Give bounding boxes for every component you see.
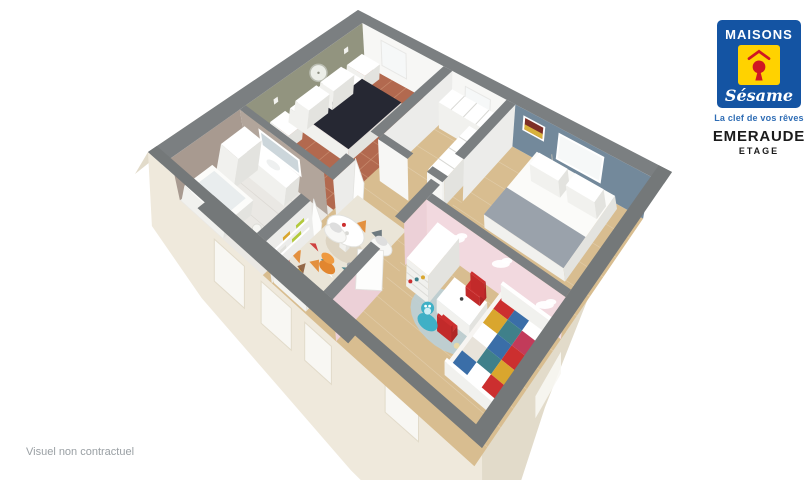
logo-yellow-box bbox=[738, 45, 780, 85]
logo-tagline: La clef de vos rêves bbox=[707, 113, 811, 123]
logo-square: MAISONS Sésame bbox=[717, 20, 801, 108]
logo-brand-top: MAISONS bbox=[725, 27, 793, 42]
floorplan-page: MAISONS Sésame La clef de vos rêves EMER… bbox=[0, 0, 811, 480]
logo-brand-script: Sésame bbox=[725, 86, 793, 105]
brand-logo: MAISONS Sésame La clef de vos rêves bbox=[707, 20, 811, 123]
model-name: EMERAUDE bbox=[707, 128, 811, 145]
keyhole-icon bbox=[738, 45, 780, 85]
model-block: EMERAUDE ETAGE bbox=[707, 128, 811, 156]
floorplan-3d-render bbox=[0, 0, 811, 480]
disclaimer-text: Visuel non contractuel bbox=[26, 446, 134, 458]
model-level: ETAGE bbox=[707, 146, 811, 156]
